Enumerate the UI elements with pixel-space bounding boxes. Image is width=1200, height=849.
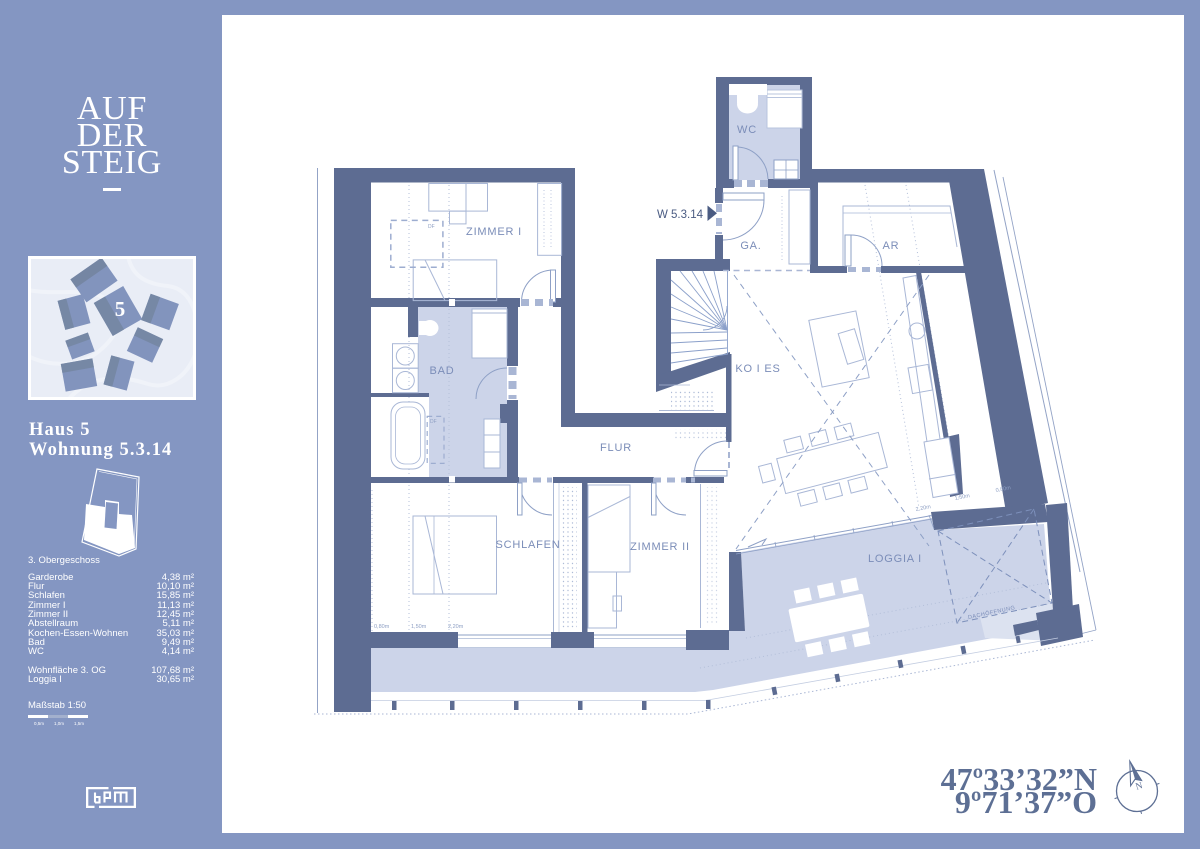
svg-text:DF: DF <box>428 224 435 230</box>
svg-text:9º71’37”O: 9º71’37”O <box>955 784 1097 820</box>
svg-text:LOGGIA I: LOGGIA I <box>868 553 922 565</box>
svg-text:WC: WC <box>737 124 757 136</box>
svg-text:2,20m: 2,20m <box>448 624 464 630</box>
svg-text:0,80m: 0,80m <box>374 624 390 630</box>
svg-text:SCHLAFEN: SCHLAFEN <box>495 539 560 551</box>
svg-text:BAD: BAD <box>429 365 454 377</box>
svg-text:AR: AR <box>883 240 900 252</box>
svg-text:KO I ES: KO I ES <box>735 363 780 375</box>
svg-text:DF: DF <box>430 419 437 425</box>
svg-text:ZIMMER II: ZIMMER II <box>630 541 690 553</box>
svg-text:ZIMMER I: ZIMMER I <box>466 226 522 238</box>
svg-text:GA.: GA. <box>740 240 761 252</box>
svg-text:W 5.3.14: W 5.3.14 <box>657 209 704 221</box>
svg-text:FLUR: FLUR <box>600 442 632 454</box>
svg-text:1,50m: 1,50m <box>411 624 427 630</box>
svg-text:N: N <box>1135 781 1144 793</box>
svg-text:2,20m: 2,20m <box>915 504 932 513</box>
